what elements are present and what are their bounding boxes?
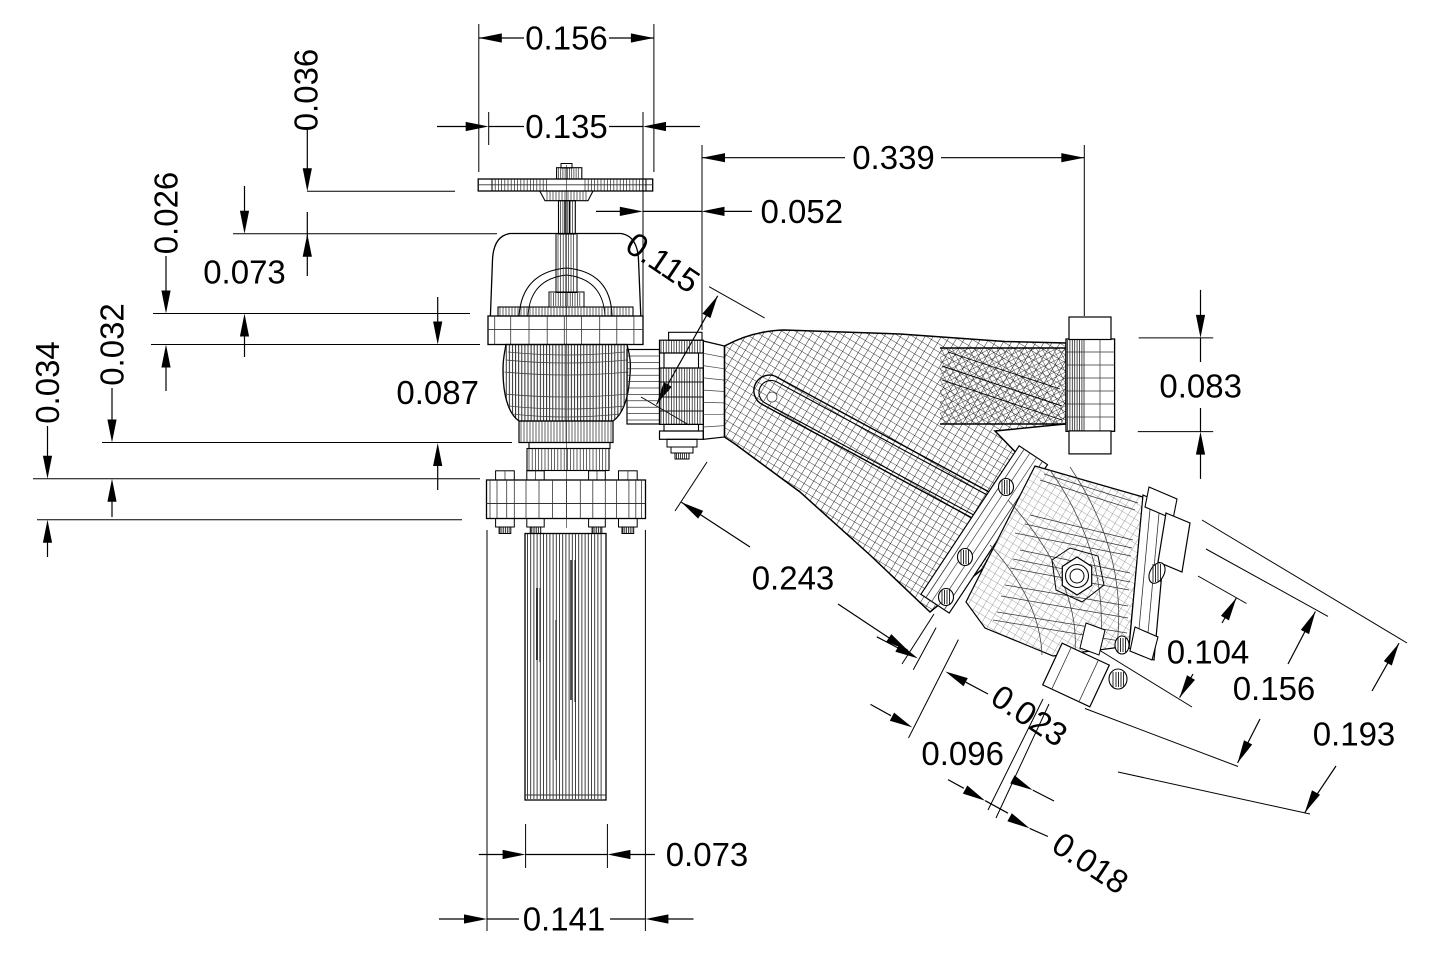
svg-text:0.036: 0.036 (288, 49, 325, 132)
svg-text:0.073: 0.073 (203, 254, 286, 291)
svg-text:0.034: 0.034 (29, 341, 66, 424)
svg-text:0.087: 0.087 (396, 374, 479, 411)
svg-text:0.032: 0.032 (94, 303, 131, 386)
svg-text:0.135: 0.135 (525, 108, 608, 145)
svg-text:0.104: 0.104 (1167, 634, 1250, 671)
svg-text:0.073: 0.073 (666, 836, 749, 873)
svg-text:0.243: 0.243 (752, 560, 835, 597)
svg-text:0.096: 0.096 (921, 735, 1004, 772)
svg-text:0.156: 0.156 (1233, 670, 1316, 707)
svg-text:0.052: 0.052 (761, 193, 844, 230)
svg-text:0.026: 0.026 (148, 172, 185, 255)
svg-text:0.193: 0.193 (1313, 716, 1396, 753)
svg-text:0.083: 0.083 (1159, 368, 1242, 405)
svg-text:0.339: 0.339 (852, 139, 935, 176)
svg-text:0.141: 0.141 (523, 901, 606, 938)
svg-text:0.156: 0.156 (525, 20, 608, 57)
